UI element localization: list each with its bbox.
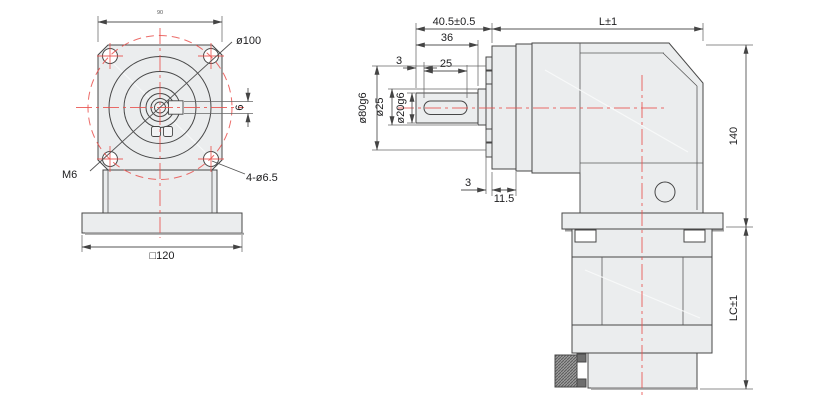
connector-tab [577,379,586,387]
boss-dia-label: ø25 [374,98,386,117]
dim-shaft-dia: ø20g6 [395,92,415,123]
dim-shaft-assembly: 40.5±0.5 [416,16,492,88]
connector-tab [577,354,586,362]
key-width-label: 6 [234,104,246,110]
side-view: 40.5±0.5 L±1 36 3 25 ø20g6 [357,16,753,397]
motor-length-label: LC±1 [728,295,740,321]
body-length-label: L±1 [599,16,617,28]
pilot-dia-label: ø80g6 [357,92,369,123]
dim-flange-thickness: 11.5 [492,172,516,205]
dim-key-length: 25 [424,58,467,98]
flange-thickness-label: 11.5 [494,193,515,205]
shaft-boss [478,89,486,125]
dim-pilot-depth: 3 [461,130,486,194]
front-circlip-lug [152,127,161,137]
shaft-assembly-length-label: 40.5±0.5 [433,16,476,28]
cable-connector [555,355,577,387]
body-height-label: 140 [728,127,740,145]
pilot-depth-label: 3 [465,177,471,189]
holes-label: 4-ø6.5 [246,172,278,184]
dim-key-offset: 3 [396,55,437,98]
shaft-length-label: 36 [441,32,453,44]
front-base-plate [82,213,242,233]
front-view: 90 ø100 M6 4-ø6.5 6 □120 [62,10,278,262]
dim-body-length: L±1 [492,16,703,41]
flange-width-label: 90 [157,10,163,16]
leader-holes: 4-ø6.5 [212,161,278,184]
gearbox-technical-drawing: 90 ø100 M6 4-ø6.5 6 □120 [0,0,831,400]
key-length-label: 25 [440,58,452,70]
dim-base-width: □120 [82,235,242,262]
key-offset-label: 3 [396,55,402,67]
adapter-notch [684,230,705,242]
dim-body-height: 140 [706,45,753,227]
gearbox-body [532,43,703,213]
base-width-label: □120 [150,250,175,262]
technical-drawing-page: 90 ø100 M6 4-ø6.5 6 □120 [0,0,831,400]
shaft-dia-label: ø20g6 [395,92,407,123]
tap-size-label: M6 [62,169,77,181]
bolt-circle-label: ø100 [236,35,261,47]
adapter-notch [575,230,596,242]
front-circlip-lug [164,127,173,137]
